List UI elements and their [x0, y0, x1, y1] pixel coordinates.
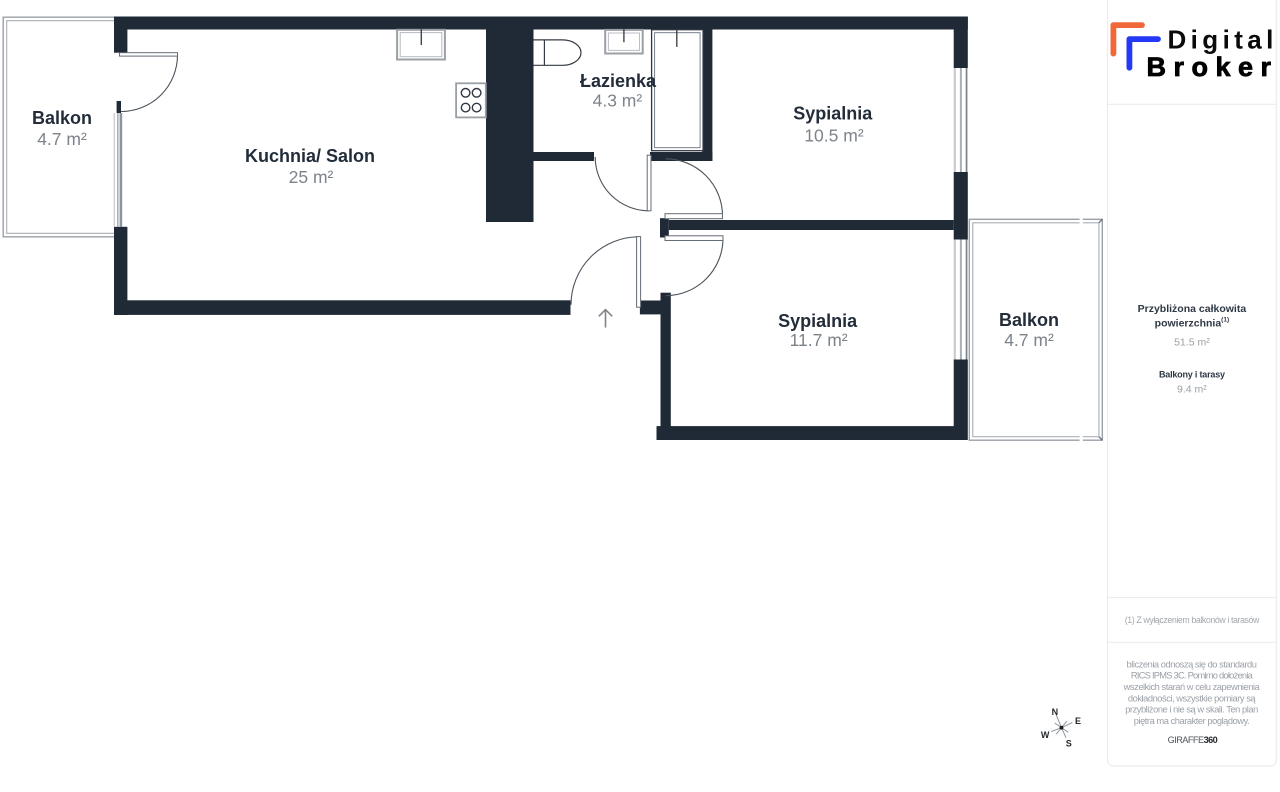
svg-text:N: N — [1052, 707, 1059, 717]
svg-text:Sypialnia: Sypialnia — [793, 104, 873, 124]
svg-text:25 m²: 25 m² — [289, 167, 334, 187]
svg-text:4.7 m²: 4.7 m² — [37, 129, 87, 149]
svg-text:RICS IPMS 3C. Pomimo dołożenia: RICS IPMS 3C. Pomimo dołożenia — [1131, 671, 1254, 681]
svg-text:powierzchnia(1): powierzchnia(1) — [1155, 317, 1229, 330]
svg-text:Łazienka: Łazienka — [580, 71, 657, 91]
svg-text:GIRAFFE360: GIRAFFE360 — [1168, 735, 1218, 745]
svg-text:11.7 m²: 11.7 m² — [790, 330, 848, 350]
svg-text:wszelkich starań w celu zapewn: wszelkich starań w celu zapewnienia — [1123, 682, 1261, 692]
svg-text:(1) Z wyłączeniem balkonów i t: (1) Z wyłączeniem balkonów i tarasów — [1125, 615, 1260, 625]
svg-text:E: E — [1075, 716, 1081, 726]
svg-text:Digital: Digital — [1168, 25, 1278, 55]
svg-text:4.7 m²: 4.7 m² — [1004, 330, 1054, 350]
svg-text:piętra ma charakter poglądowy.: piętra ma charakter poglądowy. — [1134, 716, 1250, 726]
svg-text:Sypialnia: Sypialnia — [778, 311, 858, 331]
svg-text:S: S — [1066, 739, 1072, 749]
svg-text:Balkon: Balkon — [999, 310, 1059, 330]
svg-text:Przybliżona całkowita: Przybliżona całkowita — [1138, 303, 1247, 315]
svg-text:bliczenia odnoszą się do stand: bliczenia odnoszą się do standardu — [1127, 659, 1257, 669]
svg-text:Kuchnia/ Salon: Kuchnia/ Salon — [245, 146, 375, 166]
svg-text:Broker: Broker — [1147, 52, 1279, 82]
svg-text:4.3 m²: 4.3 m² — [593, 91, 643, 111]
svg-text:51.5 m²: 51.5 m² — [1174, 337, 1210, 349]
svg-text:9.4 m²: 9.4 m² — [1177, 384, 1207, 396]
svg-text:dokładności, wszystkie pomiary: dokładności, wszystkie pomiary są — [1128, 693, 1257, 703]
svg-text:W: W — [1041, 730, 1050, 740]
svg-text:10.5 m²: 10.5 m² — [804, 125, 863, 145]
svg-text:Balkony i tarasy: Balkony i tarasy — [1159, 370, 1225, 380]
svg-text:przybliżone i nie są w skali.: przybliżone i nie są w skali. Ten plan — [1125, 705, 1258, 715]
svg-text:Balkon: Balkon — [32, 108, 92, 128]
